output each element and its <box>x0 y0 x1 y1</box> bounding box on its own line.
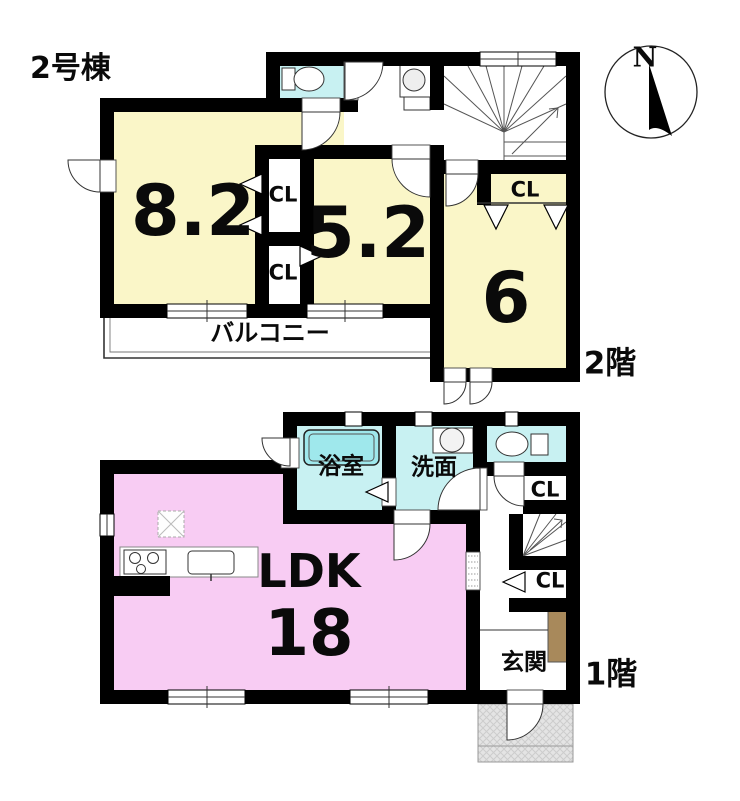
balcony-label: バルコニー <box>210 321 330 345</box>
washroom-label: 洗面 <box>411 457 457 480</box>
bathroom-label: 浴室 <box>318 456 364 479</box>
closet-2f-top-label: CL <box>269 185 298 206</box>
washstand-1f <box>433 428 473 453</box>
closet-1f-hall-label: CL <box>531 480 560 501</box>
ldk-label: LDK <box>257 548 360 594</box>
stairs-2f <box>444 66 566 160</box>
toilet-2f <box>282 67 324 91</box>
closet-room6-label: CL <box>511 180 540 201</box>
floor1-label: 1階 <box>585 660 638 691</box>
room-6-label: 6 <box>482 263 531 333</box>
washstand-2f <box>400 64 433 110</box>
stairs-1f <box>523 514 566 556</box>
floor-plan: 2号棟 N 8.2 5.2 6 CL CL CL バルコニー 2階 浴室 洗面 … <box>0 0 740 801</box>
floor2-label: 2階 <box>584 349 637 380</box>
kitchen-counter <box>120 547 258 581</box>
toilet-1f <box>496 432 548 456</box>
room-52-label: 5.2 <box>306 198 430 268</box>
closet-1f-entrance-label: CL <box>536 571 565 592</box>
room-82-label: 8.2 <box>131 176 255 246</box>
ldk-size-label: 18 <box>264 602 353 666</box>
building-title: 2号棟 <box>30 54 111 84</box>
range-hood-mark <box>158 511 184 537</box>
entrance-label: 玄関 <box>501 652 547 675</box>
closet-2f-bottom-label: CL <box>269 263 298 284</box>
compass-north-label: N <box>633 45 658 72</box>
